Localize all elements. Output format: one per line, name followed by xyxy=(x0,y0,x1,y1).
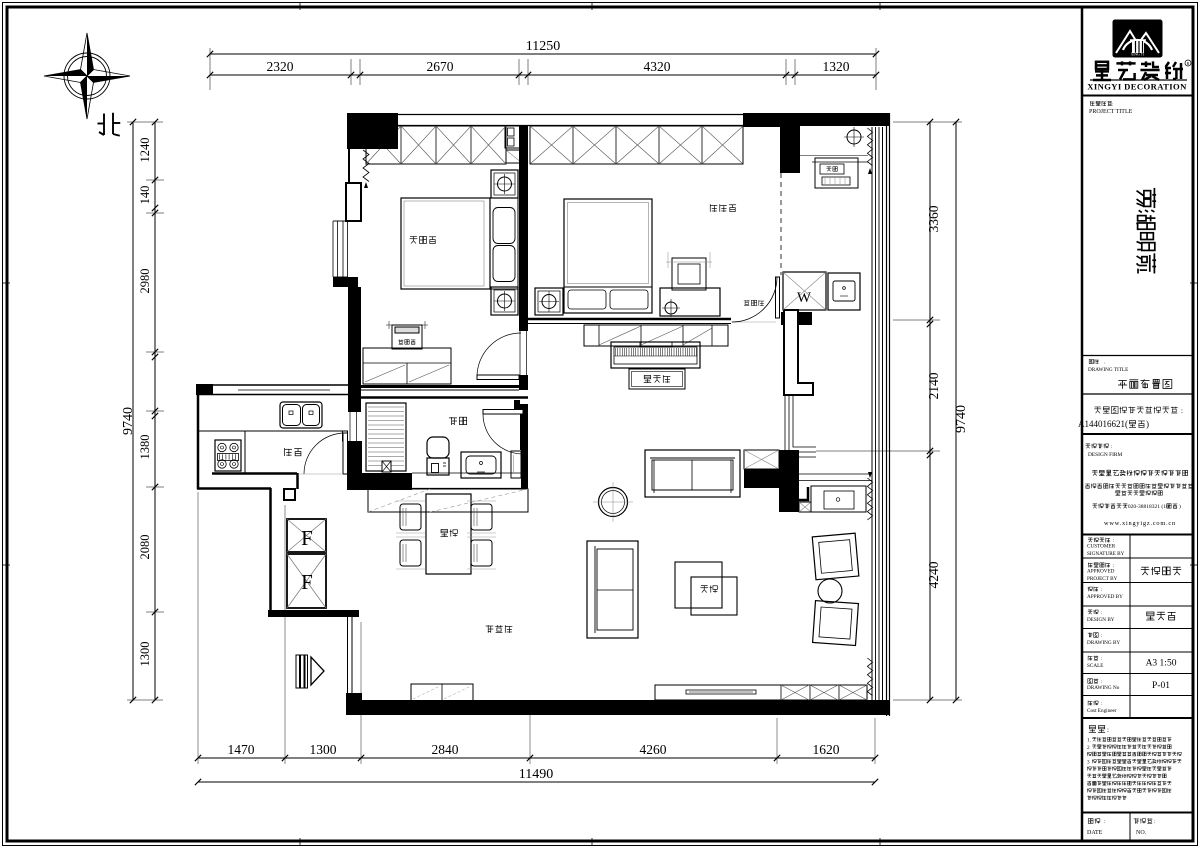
svg-text::: : xyxy=(1107,726,1109,734)
svg-text:11490: 11490 xyxy=(519,767,553,782)
svg-text:www.xingyigz.com.cn: www.xingyigz.com.cn xyxy=(1104,520,1176,527)
svg-text:140: 140 xyxy=(138,186,152,205)
svg-text:P-01: P-01 xyxy=(1152,681,1170,691)
svg-text:Cost Engineer: Cost Engineer xyxy=(1087,708,1117,714)
svg-text:DRAWING No: DRAWING No xyxy=(1087,685,1120,691)
svg-text:A144016621(: A144016621( xyxy=(1078,419,1128,429)
svg-text:4320: 4320 xyxy=(644,59,671,74)
svg-text:9740: 9740 xyxy=(954,405,969,433)
svg-text:SIGNATURE BY: SIGNATURE BY xyxy=(1087,551,1125,557)
svg-text:DESIGN FIRM: DESIGN FIRM xyxy=(1088,452,1123,458)
svg-text:2080: 2080 xyxy=(138,535,152,560)
svg-text::: : xyxy=(1101,611,1102,616)
svg-text:1.: 1. xyxy=(1087,738,1091,744)
svg-text:A3 1:50: A3 1:50 xyxy=(1146,659,1177,669)
svg-text:PROJECT BY: PROJECT BY xyxy=(1087,576,1118,582)
svg-text::: : xyxy=(1104,360,1105,365)
svg-text::: : xyxy=(1101,657,1102,662)
svg-text:SCALE: SCALE xyxy=(1087,663,1103,669)
svg-text:3: 3 xyxy=(1087,760,1090,766)
svg-text::: : xyxy=(1101,634,1102,639)
svg-text:CUSTOMER: CUSTOMER xyxy=(1087,544,1116,550)
svg-text::: : xyxy=(1111,445,1112,450)
svg-text:1320: 1320 xyxy=(823,59,850,74)
svg-text:NO.: NO. xyxy=(1136,830,1147,836)
svg-text:F: F xyxy=(301,570,313,594)
svg-text:): ) xyxy=(1179,503,1181,510)
svg-text:DRAWING BY: DRAWING BY xyxy=(1087,640,1120,646)
svg-text:F: F xyxy=(301,526,313,550)
svg-text:2320: 2320 xyxy=(267,59,294,74)
svg-text:1300: 1300 xyxy=(138,642,152,667)
svg-text:4260: 4260 xyxy=(640,742,667,757)
svg-text:1620: 1620 xyxy=(813,742,840,757)
svg-text:1470: 1470 xyxy=(228,742,255,757)
svg-text:XINGYI DECORATION: XINGYI DECORATION xyxy=(1087,82,1187,92)
svg-text:R: R xyxy=(1187,61,1190,66)
svg-text:2140: 2140 xyxy=(926,372,941,399)
svg-text:DESIGN BY: DESIGN BY xyxy=(1087,617,1115,623)
svg-text:3360: 3360 xyxy=(926,205,941,232)
svg-text::: : xyxy=(1101,702,1102,707)
svg-text:: 020-38818321 (10: : 020-38818321 (10 xyxy=(1125,503,1169,510)
svg-text:2: 2 xyxy=(1087,745,1090,751)
svg-text:APPROVED BY: APPROVED BY xyxy=(1087,594,1123,600)
svg-text::: : xyxy=(1101,588,1102,593)
svg-text:DRAWING TITLE: DRAWING TITLE xyxy=(1088,367,1128,373)
svg-text:1300: 1300 xyxy=(310,742,337,757)
svg-text:9740: 9740 xyxy=(121,407,136,435)
svg-text:XING YI: XING YI xyxy=(1131,53,1145,57)
svg-text:1380: 1380 xyxy=(138,435,152,460)
svg-text:1240: 1240 xyxy=(138,138,152,163)
svg-text:2840: 2840 xyxy=(432,742,459,757)
svg-text:11250: 11250 xyxy=(526,39,560,54)
svg-text:4240: 4240 xyxy=(926,561,941,588)
svg-text:W: W xyxy=(797,290,812,306)
svg-text::: : xyxy=(1112,103,1113,108)
svg-text:PROJECT TITLE: PROJECT TITLE xyxy=(1089,109,1133,115)
svg-text::: : xyxy=(1181,407,1183,415)
svg-text:DATE: DATE xyxy=(1087,830,1103,836)
svg-text:2980: 2980 xyxy=(138,269,152,294)
svg-text:2670: 2670 xyxy=(427,59,454,74)
svg-text:APPROVED: APPROVED xyxy=(1087,569,1115,575)
svg-text:): ) xyxy=(1146,419,1149,429)
